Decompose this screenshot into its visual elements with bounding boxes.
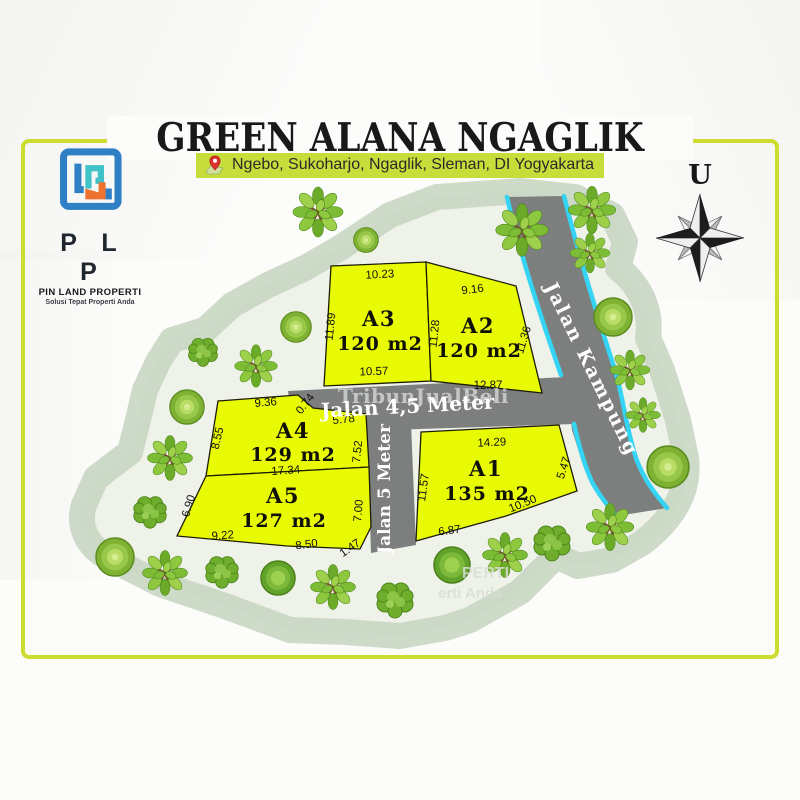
plot-a3-dim-top: 10.23 [365,268,394,281]
compass-north-label: U [688,160,712,191]
plot-a5 [177,467,371,549]
plot-a5-id: A5 [265,483,300,508]
plot-a3-area: 120 m2 [337,333,423,355]
plot-a5-area: 127 m2 [241,510,327,532]
location-bar: Ngebo, Sukoharjo, Ngaglik, Sleman, DI Yo… [196,153,604,178]
logo-company-name: PIN LAND PROPERTI [34,287,146,298]
map-pin-icon [204,155,226,175]
plot-a5-dim-bottom-left: 9.22 [211,529,234,543]
plot-a5-dim-right: 7.00 [352,499,366,522]
plot-a2-area: 120 m2 [436,340,522,362]
plot-a4-id: A4 [275,418,310,443]
watermark-partial: PERTI [462,565,509,582]
plot-a1-id: A1 [468,456,503,481]
plot-a4-dim-top: 9.36 [254,396,277,410]
logo-tagline: Solusi Tepat Properti Anda [34,299,146,306]
logo-initials: P L P [40,229,146,287]
plp-logo-icon [51,209,129,226]
compass-star-icon [656,194,744,282]
road-label-jalan-5-meter: Jalan 5 Meter [375,423,395,556]
compass-rose: U [640,158,760,288]
plot-a1-dim-top: 14.29 [477,436,506,449]
flyer-canvas: GREEN ALANA NGAGLIK Ngebo, Sukoharjo, Ng… [0,0,800,800]
plot-a4-dim-right: 7.52 [351,440,365,464]
location-text: Ngebo, Sukoharjo, Ngaglik, Sleman, DI Yo… [232,156,594,174]
company-logo: P L P PIN LAND PROPERTI Solusi Tepat Pro… [34,148,146,306]
watermark-partial: erti Anda [438,585,503,602]
plot-a3-id: A3 [361,306,396,331]
plot-a4-area: 129 m2 [250,444,336,466]
plot-a4-dim-bottom: 17.34 [271,464,301,478]
plot-a3-dim-bottom: 10.57 [359,366,388,379]
watermark-brand: TribunJualBeli [338,384,509,408]
plot-a2-id: A2 [460,313,495,338]
